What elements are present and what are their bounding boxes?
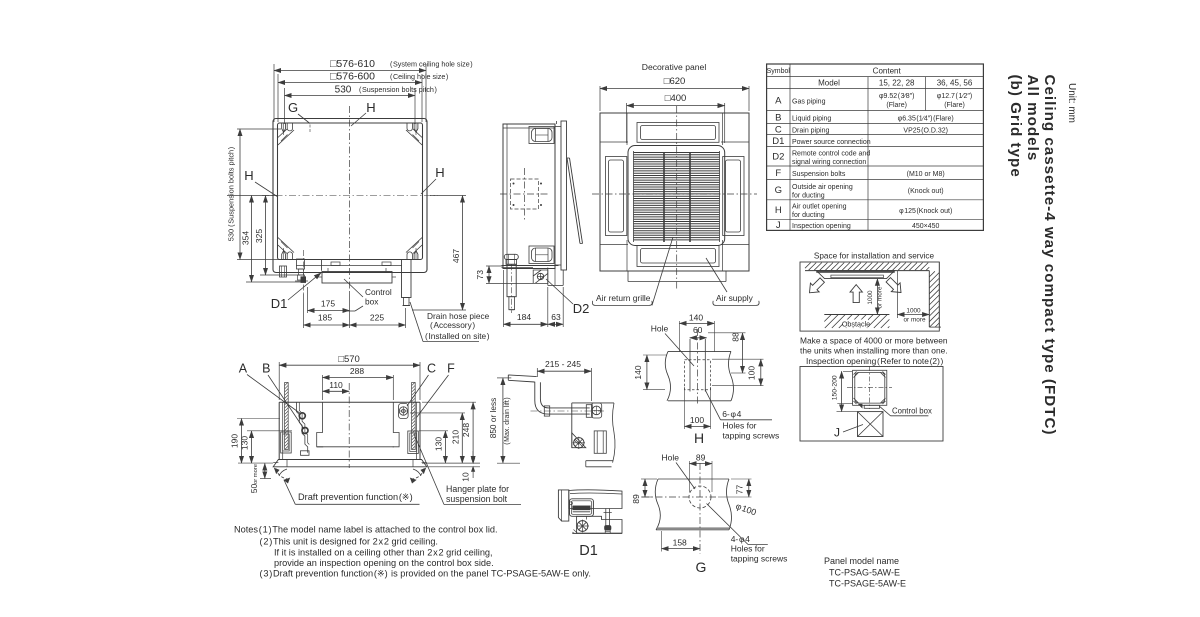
svg-text:Remote control code and: Remote control code and (792, 151, 870, 158)
svg-text:for ducting: for ducting (792, 212, 825, 219)
svg-text:850 or less: 850 or less (488, 398, 498, 439)
svg-text:140: 140 (689, 313, 703, 323)
svg-text:Inspection opening: Inspection opening (792, 223, 851, 230)
svg-text:φ6.35 (1∕4″) (Flare): φ6.35 (1∕4″) (Flare) (898, 116, 954, 123)
svg-text:( Accessory ): ( Accessory ) (430, 320, 475, 330)
svg-text:Power source connection: Power source connection (792, 139, 871, 146)
svg-text:A: A (239, 362, 248, 376)
svg-text:( System ceiling hole size ): ( System ceiling hole size ) (390, 60, 473, 69)
svg-text:100: 100 (747, 366, 757, 380)
svg-text:φ9.52 ( 3∕8″): φ9.52 ( 3∕8″) (879, 93, 914, 100)
svg-text:248: 248 (461, 423, 471, 437)
svg-text:100: 100 (690, 415, 704, 425)
svg-text:110: 110 (329, 380, 343, 390)
svg-text:15, 22, 28: 15, 22, 28 (879, 79, 915, 88)
svg-text:Model: Model (818, 79, 840, 88)
svg-text:If it is installed on a ceilin: If it is installed on a ceiling other th… (274, 548, 493, 558)
svg-text:63: 63 (551, 312, 561, 322)
svg-text:77: 77 (734, 485, 744, 495)
svg-text:J: J (776, 220, 781, 231)
svg-text:10: 10 (461, 472, 471, 482)
svg-text:H: H (694, 430, 704, 446)
svg-text:( 3 ) Draft prevention functio: ( 3 ) Draft prevention function (※) is p… (260, 569, 591, 579)
svg-text:G: G (288, 100, 298, 115)
svg-text:H: H (244, 168, 253, 183)
svg-text:130: 130 (240, 436, 250, 450)
svg-text:Drain piping: Drain piping (792, 128, 829, 135)
svg-text:Control: Control (365, 287, 392, 297)
svg-text:Panel model name: Panel model name (824, 556, 899, 566)
svg-text:1000: 1000 (906, 308, 921, 315)
svg-text:Inspection opening ( Refer to: Inspection opening ( Refer to note (2) ) (806, 356, 944, 366)
svg-text:175: 175 (321, 299, 335, 309)
svg-text:530: 530 (335, 85, 352, 96)
svg-text:Gas piping: Gas piping (792, 99, 826, 106)
svg-text:190: 190 (230, 434, 240, 448)
svg-text:A: A (775, 96, 782, 107)
svg-text:C: C (775, 125, 782, 136)
svg-text:suspension bolt: suspension bolt (446, 494, 508, 504)
svg-text:Outside air opening: Outside air opening (792, 184, 853, 191)
svg-text:Suspension bolts: Suspension bolts (792, 171, 846, 178)
svg-text:Air return grille: Air return grille (596, 293, 651, 303)
svg-text:73: 73 (475, 270, 485, 280)
svg-text:6- φ 4: 6- φ 4 (722, 409, 741, 419)
svg-text:□570: □570 (338, 354, 360, 365)
svg-text:Air outlet opening: Air outlet opening (792, 204, 847, 211)
svg-text:210: 210 (450, 430, 460, 444)
svg-text:1000: 1000 (867, 290, 874, 305)
svg-text:B: B (775, 113, 781, 124)
svg-text:D1: D1 (579, 543, 598, 559)
svg-text:Make a space of 4000 or more b: Make a space of 4000 or more between (800, 336, 948, 346)
svg-text:4- φ 4: 4- φ 4 (731, 534, 750, 544)
svg-text:tapping screws: tapping screws (731, 554, 788, 564)
svg-text:Obstacle: Obstacle (842, 320, 870, 329)
svg-text:VP25 (O.D.32): VP25 (O.D.32) (903, 128, 948, 135)
svg-text:J: J (834, 426, 840, 440)
svg-text:(Flare): (Flare) (944, 102, 965, 109)
svg-text:Unit: mm: Unit: mm (1066, 83, 1077, 123)
svg-text:Control box: Control box (892, 407, 932, 416)
svg-text:tapping screws: tapping screws (723, 431, 780, 441)
svg-text:φ 125 (Knock out): φ 125 (Knock out) (899, 208, 952, 215)
svg-text:B: B (262, 362, 270, 376)
svg-text:All models: All models (1024, 75, 1041, 162)
svg-text:Content: Content (873, 67, 902, 76)
svg-text:G: G (696, 559, 707, 575)
svg-text:215 - 245: 215 - 245 (545, 359, 581, 369)
svg-text:D2: D2 (772, 152, 784, 163)
svg-text:Decorative panel: Decorative panel (642, 62, 707, 72)
svg-text:signal wiring connection: signal wiring connection (792, 159, 866, 166)
svg-text:(Knock out): (Knock out) (908, 188, 944, 195)
svg-text:TC-PSAG-5AW-E: TC-PSAG-5AW-E (829, 568, 900, 578)
svg-text:140: 140 (633, 365, 643, 379)
svg-text:(M10 or M8): (M10 or M8) (907, 171, 945, 178)
svg-text:354: 354 (241, 231, 251, 245)
svg-text:Space for installation and ser: Space for installation and service (814, 252, 935, 261)
svg-text:( 2 ) This unit is designed fo: ( 2 ) This unit is designed for 2 x 2 gr… (260, 537, 438, 547)
svg-text:□576-600: □576-600 (330, 71, 375, 83)
svg-text:H: H (775, 205, 782, 216)
svg-text:or more: or more (903, 316, 925, 323)
svg-text:□620: □620 (664, 76, 686, 87)
svg-text:450×450: 450×450 (912, 223, 940, 230)
svg-text:325: 325 (254, 229, 264, 243)
svg-text:for ducting: for ducting (792, 193, 825, 200)
svg-text:130: 130 (434, 437, 444, 451)
svg-text:150-200: 150-200 (831, 375, 838, 400)
svg-text:88: 88 (731, 332, 741, 342)
svg-text:D2: D2 (573, 301, 590, 316)
svg-text:(Flare): (Flare) (886, 102, 907, 109)
svg-text:G: G (775, 185, 782, 196)
svg-text:( Installed on site ): ( Installed on site ) (425, 331, 490, 341)
svg-text:provide an inspection opening: provide an inspection opening on the con… (274, 558, 494, 568)
svg-text:TC-PSAGE-5AW-E: TC-PSAGE-5AW-E (829, 579, 906, 589)
svg-text:( Ceiling hole size ): ( Ceiling hole size ) (390, 72, 448, 81)
svg-text:184: 184 (517, 312, 531, 322)
svg-text:530 ( Suspension bolts pitch ): 530 ( Suspension bolts pitch ) (227, 147, 236, 242)
svg-text:φ 100: φ 100 (734, 501, 757, 518)
svg-text:89: 89 (696, 453, 706, 463)
svg-text:225: 225 (370, 313, 384, 323)
svg-text:( Max. drain lift ): ( Max. drain lift ) (504, 397, 511, 444)
svg-text:H: H (366, 100, 375, 115)
svg-text:(b) Grid type: (b) Grid type (1007, 75, 1024, 178)
svg-text:F: F (775, 168, 781, 179)
svg-text:( Suspension bolts pitch ): ( Suspension bolts pitch ) (359, 85, 437, 94)
svg-text:185: 185 (318, 313, 332, 323)
svg-text:36, 45, 56: 36, 45, 56 (937, 79, 973, 88)
svg-text:Symbol: Symbol (767, 68, 791, 75)
svg-text:H: H (435, 165, 444, 180)
svg-text:Liquid piping: Liquid piping (792, 116, 831, 123)
svg-text:467: 467 (451, 249, 461, 263)
svg-text:60: 60 (693, 325, 703, 335)
svg-text:D1: D1 (772, 136, 784, 147)
svg-text:158: 158 (673, 538, 687, 548)
svg-text:the units when installing more: the units when installing more than one. (800, 346, 948, 356)
svg-text:□400: □400 (665, 93, 687, 104)
svg-text:Notes ( 1 ) The model name lab: Notes ( 1 ) The model name label is atta… (234, 525, 498, 535)
svg-text:89: 89 (631, 494, 641, 504)
svg-text:Hole: Hole (651, 324, 669, 334)
svg-text:Air supply: Air supply (716, 293, 754, 303)
svg-text:□576-610: □576-610 (330, 58, 375, 70)
svg-text:Hanger plate for: Hanger plate for (446, 484, 509, 494)
svg-text:φ12.7 ( 1∕2″): φ12.7 ( 1∕2″) (937, 93, 972, 100)
svg-text:Draft prevention function (※): Draft prevention function (※) (298, 492, 413, 502)
svg-text:box: box (365, 297, 379, 307)
svg-text:F: F (447, 362, 455, 376)
svg-text:C: C (427, 362, 436, 376)
svg-text:or more: or more (253, 464, 259, 484)
svg-text:288: 288 (350, 366, 364, 376)
svg-text:Ceiling cassette-4 way compact: Ceiling cassette-4 way compact type (FDT… (1041, 75, 1058, 436)
svg-text:Holes for: Holes for (723, 421, 757, 431)
svg-text:D1: D1 (271, 296, 288, 311)
svg-text:Holes for: Holes for (731, 544, 765, 554)
svg-text:Hole: Hole (662, 453, 680, 463)
